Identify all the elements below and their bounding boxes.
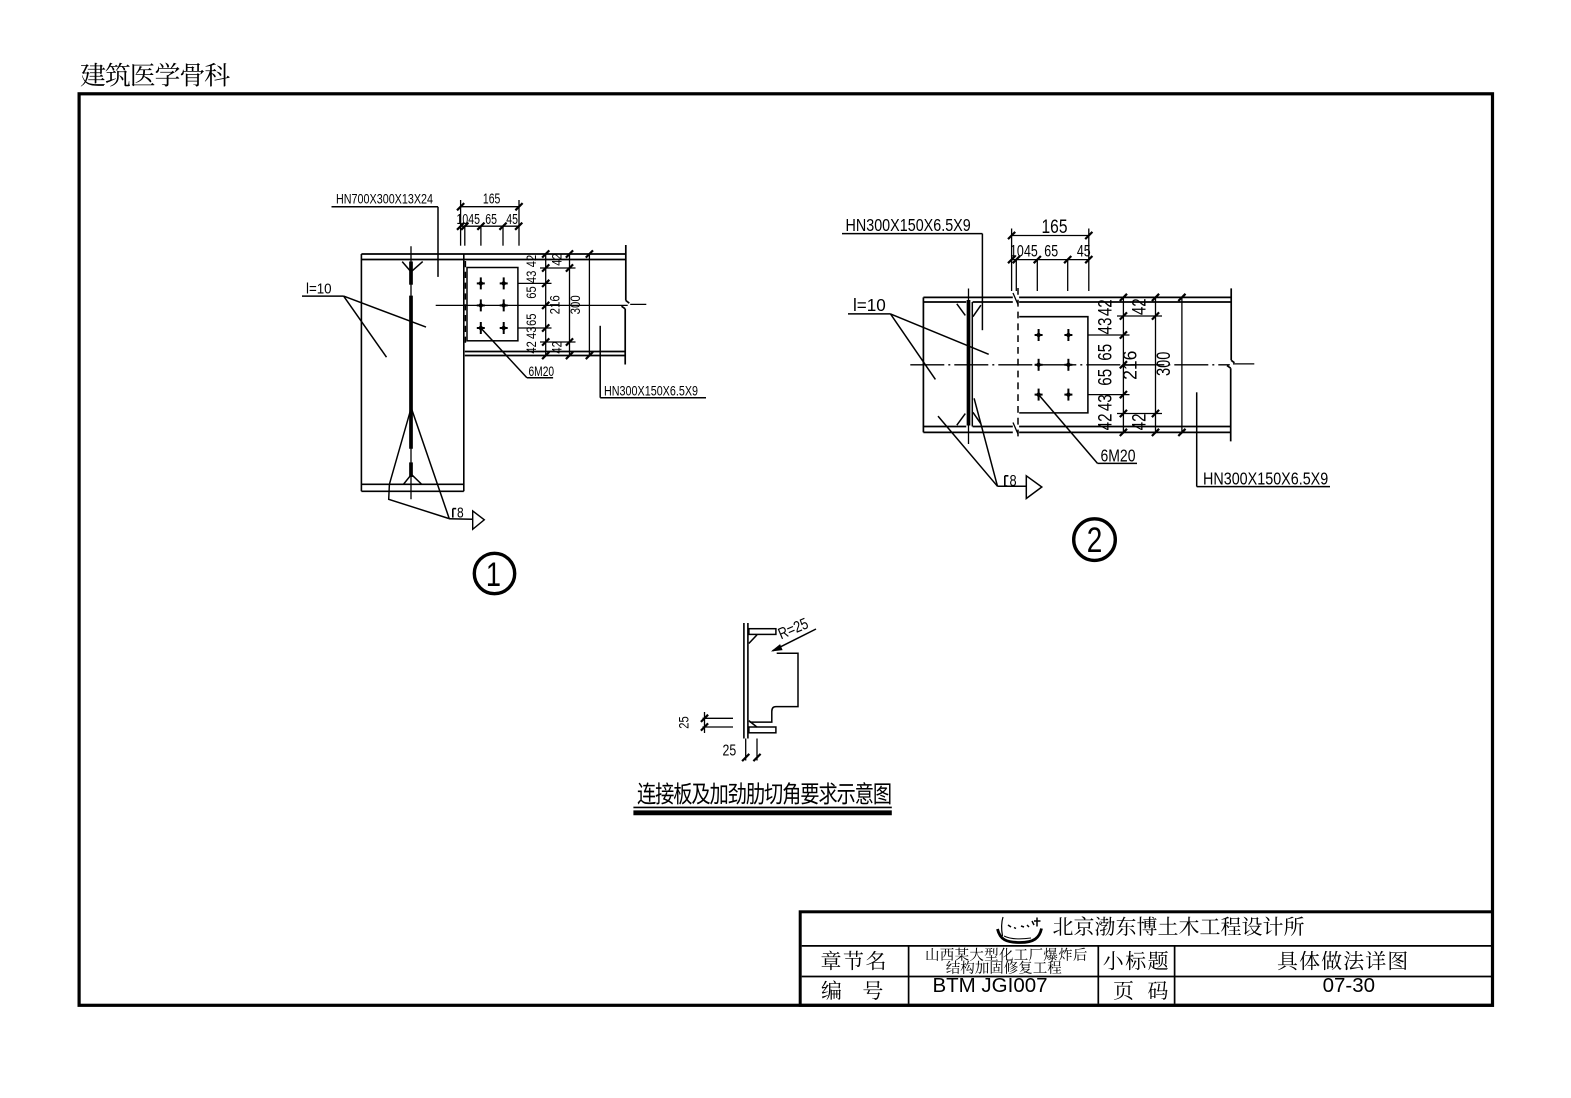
svg-text:65: 65 <box>1094 344 1116 361</box>
svg-text:42: 42 <box>524 255 539 267</box>
svg-text:25: 25 <box>676 716 691 728</box>
svg-text:300: 300 <box>567 295 583 314</box>
svg-text:10: 10 <box>457 210 469 227</box>
svg-text:300: 300 <box>1152 352 1175 376</box>
svg-text:HN300X150X6.5X9: HN300X150X6.5X9 <box>1203 470 1328 489</box>
svg-text:l=10: l=10 <box>853 295 886 316</box>
svg-text:BTM JGI007: BTM JGI007 <box>932 974 1047 997</box>
svg-text:42: 42 <box>1094 299 1116 316</box>
svg-text:165: 165 <box>483 191 500 207</box>
svg-text:HN700X300X13X24: HN700X300X13X24 <box>336 191 433 207</box>
svg-text:6M20: 6M20 <box>529 363 555 379</box>
svg-text:65: 65 <box>1094 369 1116 386</box>
svg-text:45: 45 <box>1024 243 1038 261</box>
svg-text:45: 45 <box>506 210 518 227</box>
svg-text:2: 2 <box>1087 520 1103 560</box>
svg-text:45: 45 <box>468 210 480 227</box>
svg-text:216: 216 <box>546 295 562 314</box>
svg-text:8: 8 <box>457 504 464 521</box>
svg-text:65: 65 <box>524 314 539 326</box>
svg-text:42: 42 <box>1094 413 1116 430</box>
svg-text:8: 8 <box>1010 473 1017 491</box>
svg-text:43: 43 <box>1094 394 1116 411</box>
svg-text:25: 25 <box>723 742 737 760</box>
svg-text:65: 65 <box>524 286 539 298</box>
svg-text:42: 42 <box>524 341 539 353</box>
svg-text:65: 65 <box>485 210 497 227</box>
svg-text:1: 1 <box>486 555 501 594</box>
svg-text:l=10: l=10 <box>306 280 332 297</box>
svg-text:165: 165 <box>1042 216 1068 238</box>
svg-text:HN300X150X6.5X9: HN300X150X6.5X9 <box>604 383 698 399</box>
svg-text:65: 65 <box>1044 243 1058 261</box>
svg-text:42: 42 <box>549 253 564 265</box>
svg-text:HN300X150X6.5X9: HN300X150X6.5X9 <box>846 217 971 236</box>
svg-text:216: 216 <box>1119 351 1141 380</box>
svg-text:07-30: 07-30 <box>1323 974 1375 997</box>
svg-text:42: 42 <box>1128 413 1150 430</box>
svg-text:42: 42 <box>1128 298 1150 315</box>
svg-text:43: 43 <box>524 271 539 283</box>
svg-text:42: 42 <box>549 341 564 353</box>
svg-text:6M20: 6M20 <box>1101 447 1136 466</box>
svg-text:43: 43 <box>1094 318 1116 335</box>
